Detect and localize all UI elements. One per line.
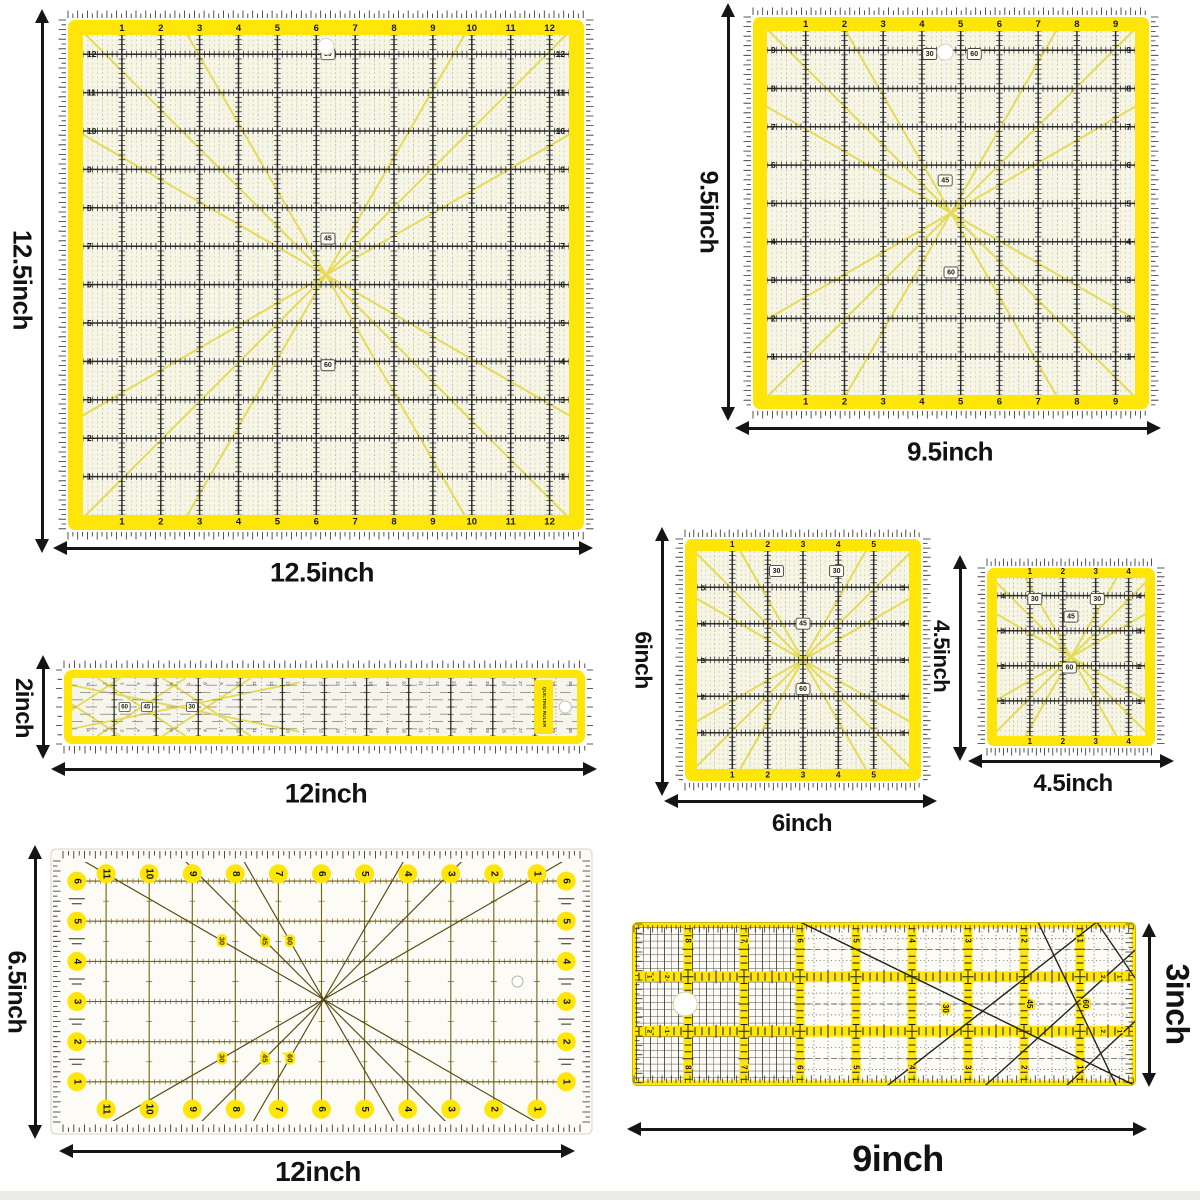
svg-text:7: 7 <box>740 1065 749 1070</box>
r45-height-label: 4.5inch <box>928 620 954 692</box>
svg-text:1: 1 <box>71 1079 82 1085</box>
r95-width-arrow <box>748 427 1148 430</box>
svg-text:1: 1 <box>1137 699 1141 706</box>
svg-text:60: 60 <box>285 937 294 945</box>
svg-text:30: 30 <box>926 51 934 58</box>
svg-text:2: 2 <box>842 397 847 408</box>
svg-text:10: 10 <box>236 681 241 686</box>
svg-text:45: 45 <box>144 705 151 711</box>
svg-text:12: 12 <box>544 517 555 528</box>
svg-text:1: 1 <box>645 975 652 979</box>
svg-text:23: 23 <box>452 681 457 686</box>
quilting-rulers-product-diagram: 1234567891011121234567891011121211109876… <box>0 0 1200 1200</box>
svg-text:3: 3 <box>881 397 886 408</box>
svg-text:3: 3 <box>1126 275 1131 285</box>
svg-text:7: 7 <box>353 517 358 528</box>
svg-text:12: 12 <box>269 681 274 686</box>
svg-text:10: 10 <box>556 126 566 136</box>
svg-text:24: 24 <box>468 728 473 733</box>
svg-text:1: 1 <box>560 472 565 482</box>
svg-text:17: 17 <box>352 681 357 686</box>
svg-text:10: 10 <box>467 517 478 528</box>
svg-text:12: 12 <box>87 49 97 59</box>
svg-text:45: 45 <box>1067 614 1075 621</box>
svg-text:7: 7 <box>273 1106 284 1112</box>
svg-text:10: 10 <box>236 728 241 733</box>
svg-text:10: 10 <box>144 868 155 880</box>
r12x65-width-label: 12inch <box>275 1156 361 1188</box>
svg-text:3: 3 <box>801 770 806 780</box>
svg-text:5: 5 <box>871 770 876 780</box>
r9x3-height-arrow <box>1148 936 1151 1074</box>
svg-text:2: 2 <box>158 517 163 528</box>
r125-width-arrow <box>66 547 580 550</box>
svg-text:3: 3 <box>197 23 202 34</box>
svg-text:2: 2 <box>488 1106 499 1112</box>
svg-text:26: 26 <box>501 681 506 686</box>
svg-text:8: 8 <box>230 1106 241 1112</box>
svg-text:1: 1 <box>1028 737 1033 746</box>
svg-text:2: 2 <box>663 975 670 979</box>
svg-text:12: 12 <box>269 728 274 733</box>
svg-text:5: 5 <box>701 583 705 592</box>
svg-text:4: 4 <box>771 237 776 247</box>
svg-text:27: 27 <box>518 681 523 686</box>
svg-text:60: 60 <box>324 362 332 369</box>
svg-text:9: 9 <box>1113 19 1118 30</box>
r12x2-height-arrow <box>42 668 45 746</box>
svg-text:1: 1 <box>1076 1065 1085 1070</box>
svg-text:9: 9 <box>771 45 776 55</box>
svg-text:6: 6 <box>316 1106 327 1112</box>
svg-text:7: 7 <box>740 938 749 943</box>
svg-text:1: 1 <box>803 397 809 408</box>
svg-text:9: 9 <box>430 23 435 34</box>
svg-text:45: 45 <box>324 236 332 243</box>
svg-text:2: 2 <box>1137 664 1141 671</box>
svg-text:1: 1 <box>701 729 705 738</box>
r6x6-height-label: 6inch <box>630 631 657 689</box>
svg-text:16: 16 <box>335 728 340 733</box>
svg-text:45: 45 <box>799 621 807 628</box>
r12x65-width-arrow <box>72 1150 562 1153</box>
r9x3-height-label: 3inch <box>1159 963 1196 1044</box>
svg-text:20: 20 <box>402 681 407 686</box>
svg-text:2: 2 <box>71 1039 82 1045</box>
svg-text:3: 3 <box>560 395 565 405</box>
svg-text:2: 2 <box>1126 313 1131 323</box>
svg-text:3: 3 <box>701 656 705 665</box>
svg-text:25: 25 <box>485 681 490 686</box>
svg-text:9: 9 <box>1126 45 1131 55</box>
svg-text:7: 7 <box>771 122 776 132</box>
svg-text:7: 7 <box>353 23 358 34</box>
svg-text:4: 4 <box>236 517 242 528</box>
svg-text:3: 3 <box>71 999 82 1005</box>
svg-text:11: 11 <box>506 23 517 34</box>
svg-text:19: 19 <box>385 728 390 733</box>
svg-text:9: 9 <box>430 517 435 528</box>
svg-text:60: 60 <box>121 705 128 711</box>
svg-text:15: 15 <box>319 728 324 733</box>
r12x2-height-label: 2inch <box>9 678 37 738</box>
svg-text:8: 8 <box>771 84 776 94</box>
svg-text:11: 11 <box>556 88 565 98</box>
svg-text:10: 10 <box>467 23 478 34</box>
svg-text:8: 8 <box>684 1065 693 1070</box>
r125-height-label: 12.5inch <box>7 230 38 330</box>
svg-text:8: 8 <box>1074 397 1079 408</box>
svg-text:3: 3 <box>445 871 456 877</box>
svg-text:5: 5 <box>958 19 964 30</box>
ruler-4-5-inch-square: 123412344321432130304560 <box>977 558 1165 756</box>
svg-text:3: 3 <box>1093 567 1098 576</box>
svg-text:3: 3 <box>197 517 202 528</box>
svg-text:60: 60 <box>970 51 978 58</box>
svg-text:6: 6 <box>314 23 319 34</box>
svg-text:2: 2 <box>1020 1065 1029 1070</box>
svg-text:2: 2 <box>901 692 905 701</box>
svg-text:4: 4 <box>561 959 572 965</box>
svg-text:22: 22 <box>435 728 440 733</box>
svg-text:6: 6 <box>1126 160 1131 170</box>
svg-text:4: 4 <box>836 539 841 549</box>
svg-text:1: 1 <box>901 729 905 738</box>
svg-text:2: 2 <box>560 433 565 443</box>
svg-text:6: 6 <box>560 280 565 290</box>
svg-text:60: 60 <box>1066 665 1074 672</box>
svg-text:6: 6 <box>997 397 1002 408</box>
svg-text:6: 6 <box>771 160 776 170</box>
svg-text:13: 13 <box>286 681 291 686</box>
svg-text:4: 4 <box>71 959 82 965</box>
r9x3-width-arrow <box>640 1128 1134 1131</box>
svg-text:4: 4 <box>908 1065 917 1070</box>
svg-text:5: 5 <box>852 938 861 943</box>
svg-text:20: 20 <box>402 728 407 733</box>
svg-text:7: 7 <box>87 241 92 251</box>
svg-text:60: 60 <box>799 686 807 693</box>
svg-text:12: 12 <box>544 23 555 34</box>
svg-text:30: 30 <box>833 568 841 575</box>
svg-text:21: 21 <box>418 728 423 733</box>
svg-text:8: 8 <box>391 517 396 528</box>
svg-text:17: 17 <box>352 728 357 733</box>
r125-height-arrow <box>41 22 44 540</box>
svg-text:30: 30 <box>568 681 573 686</box>
svg-text:1: 1 <box>119 517 125 528</box>
svg-text:2: 2 <box>87 433 92 443</box>
svg-text:3: 3 <box>87 395 92 405</box>
svg-text:11: 11 <box>101 1104 112 1115</box>
svg-text:6: 6 <box>796 938 805 943</box>
svg-text:23: 23 <box>452 728 457 733</box>
r95-height-arrow <box>727 16 730 408</box>
ruler-9-5-inch-square: 1234567891234567899876543219876543213060… <box>742 6 1160 420</box>
svg-text:2: 2 <box>701 692 705 701</box>
svg-text:5: 5 <box>275 517 281 528</box>
svg-text:1: 1 <box>1126 352 1131 362</box>
svg-text:8: 8 <box>1074 19 1079 30</box>
svg-text:14: 14 <box>302 728 307 733</box>
svg-text:24: 24 <box>468 681 473 686</box>
svg-text:5: 5 <box>852 1065 861 1070</box>
svg-text:1: 1 <box>1001 699 1005 706</box>
svg-text:4: 4 <box>1137 594 1141 601</box>
svg-text:30: 30 <box>568 728 573 733</box>
svg-text:1: 1 <box>771 352 776 362</box>
ruler-12x2-inch-strip: 1122334455667788991010111112121313141415… <box>56 660 593 754</box>
svg-text:5: 5 <box>901 583 905 592</box>
svg-text:4: 4 <box>560 356 565 366</box>
svg-text:1: 1 <box>730 770 735 780</box>
svg-text:4: 4 <box>402 1106 413 1112</box>
svg-text:60: 60 <box>947 269 955 276</box>
r125-width-label: 12.5inch <box>270 558 374 589</box>
r45-width-label: 4.5inch <box>1033 770 1112 798</box>
svg-text:5: 5 <box>359 1106 370 1112</box>
svg-text:2: 2 <box>561 1039 572 1045</box>
svg-text:8: 8 <box>684 938 693 943</box>
svg-text:26: 26 <box>501 728 506 733</box>
svg-text:3: 3 <box>445 1106 456 1112</box>
svg-text:6: 6 <box>314 517 319 528</box>
svg-text:9: 9 <box>1113 397 1118 408</box>
svg-text:6: 6 <box>561 878 572 884</box>
bottom-image-edge <box>0 1191 1200 1200</box>
svg-text:5: 5 <box>560 318 565 328</box>
svg-text:14: 14 <box>302 681 307 686</box>
svg-text:2: 2 <box>158 23 163 34</box>
r95-width-label: 9.5inch <box>907 437 993 468</box>
svg-text:19: 19 <box>385 681 390 686</box>
svg-text:11: 11 <box>506 517 517 528</box>
svg-text:1: 1 <box>1076 938 1085 943</box>
svg-text:1: 1 <box>531 871 542 877</box>
svg-text:25: 25 <box>485 728 490 733</box>
svg-text:4: 4 <box>402 871 413 877</box>
svg-text:6: 6 <box>71 878 82 884</box>
svg-text:30: 30 <box>218 1054 227 1062</box>
svg-text:1: 1 <box>531 1106 542 1112</box>
svg-text:4: 4 <box>836 770 841 780</box>
r45-height-arrow <box>959 568 962 748</box>
svg-text:12: 12 <box>556 49 566 59</box>
svg-text:6: 6 <box>796 1065 805 1070</box>
svg-text:5: 5 <box>87 318 92 328</box>
svg-text:5: 5 <box>359 871 370 877</box>
svg-text:60: 60 <box>285 1054 294 1062</box>
svg-text:5: 5 <box>561 918 572 924</box>
svg-text:27: 27 <box>518 728 523 733</box>
ruler-12-5-inch-square: 1234567891011121234567891011121211109876… <box>56 8 596 542</box>
r6x6-height-arrow <box>661 540 664 783</box>
svg-text:11: 11 <box>87 88 96 98</box>
svg-text:2: 2 <box>842 19 847 30</box>
svg-text:1: 1 <box>1028 567 1033 576</box>
svg-text:4: 4 <box>1126 237 1131 247</box>
svg-text:5: 5 <box>1126 198 1131 208</box>
svg-text:3: 3 <box>901 656 905 665</box>
svg-text:4: 4 <box>1126 567 1131 576</box>
svg-text:30: 30 <box>1093 596 1101 603</box>
svg-text:7: 7 <box>273 871 284 877</box>
svg-text:8: 8 <box>391 23 396 34</box>
svg-text:4: 4 <box>1001 594 1005 601</box>
svg-text:3: 3 <box>801 539 806 549</box>
r9x3-width-label: 9inch <box>852 1138 944 1180</box>
svg-text:9: 9 <box>560 164 565 174</box>
svg-text:3: 3 <box>964 938 973 943</box>
ruler-9x3-inch-rect: 876543218765432112212121304560 <box>632 922 1136 1086</box>
svg-text:4: 4 <box>908 938 917 943</box>
svg-text:11: 11 <box>101 869 112 880</box>
r12x2-width-label: 12inch <box>285 779 368 810</box>
svg-text:45: 45 <box>261 1054 270 1062</box>
svg-text:3: 3 <box>881 19 886 30</box>
svg-text:45: 45 <box>261 937 270 945</box>
ruler-6-inch-square: 1234512345543215432130304560 <box>674 528 932 792</box>
svg-text:5: 5 <box>275 23 281 34</box>
svg-text:9: 9 <box>187 1106 198 1112</box>
svg-text:45: 45 <box>941 177 949 184</box>
svg-text:2: 2 <box>765 539 770 549</box>
svg-text:45: 45 <box>1025 1000 1034 1009</box>
svg-text:3: 3 <box>1137 629 1141 636</box>
svg-text:5: 5 <box>958 397 964 408</box>
svg-text:13: 13 <box>286 728 291 733</box>
svg-text:11: 11 <box>252 728 257 733</box>
svg-text:1: 1 <box>1116 975 1123 979</box>
svg-text:1: 1 <box>803 19 809 30</box>
svg-text:2: 2 <box>488 871 499 877</box>
svg-text:1: 1 <box>561 1079 572 1085</box>
svg-text:5: 5 <box>771 198 776 208</box>
svg-text:60: 60 <box>1081 1000 1090 1009</box>
svg-text:3: 3 <box>964 1065 973 1070</box>
svg-text:30: 30 <box>941 1004 950 1013</box>
svg-text:2: 2 <box>645 1029 652 1033</box>
r12x2-width-arrow <box>64 768 584 771</box>
svg-text:3: 3 <box>561 999 572 1005</box>
r12x65-height-label: 6.5inch <box>2 951 31 1034</box>
svg-text:4: 4 <box>919 19 925 30</box>
svg-text:4: 4 <box>236 23 242 34</box>
svg-text:30: 30 <box>218 937 227 945</box>
r6x6-width-arrow <box>677 800 924 803</box>
svg-text:6: 6 <box>997 19 1002 30</box>
svg-text:2: 2 <box>771 313 776 323</box>
svg-text:QUILTING RULER: QUILTING RULER <box>541 687 547 728</box>
svg-text:9: 9 <box>187 871 198 877</box>
svg-text:8: 8 <box>230 871 241 877</box>
svg-text:18: 18 <box>369 728 374 733</box>
svg-text:1: 1 <box>119 23 125 34</box>
svg-text:4: 4 <box>87 356 92 366</box>
svg-text:2: 2 <box>1061 567 1066 576</box>
svg-text:10: 10 <box>144 1104 155 1116</box>
svg-text:2: 2 <box>765 770 770 780</box>
svg-text:1: 1 <box>663 1029 670 1033</box>
svg-text:7: 7 <box>560 241 565 251</box>
svg-text:18: 18 <box>369 681 374 686</box>
svg-text:6: 6 <box>87 280 92 290</box>
svg-text:21: 21 <box>418 681 423 686</box>
svg-text:8: 8 <box>87 203 92 213</box>
svg-text:1: 1 <box>87 472 92 482</box>
svg-text:22: 22 <box>435 681 440 686</box>
svg-text:9: 9 <box>87 164 92 174</box>
svg-text:5: 5 <box>71 918 82 924</box>
r12x65-height-arrow <box>34 858 37 1126</box>
svg-text:10: 10 <box>87 126 97 136</box>
svg-text:16: 16 <box>335 681 340 686</box>
svg-text:1: 1 <box>730 539 735 549</box>
r6x6-width-label: 6inch <box>772 810 832 838</box>
svg-text:8: 8 <box>560 203 565 213</box>
svg-text:30: 30 <box>1031 596 1039 603</box>
svg-text:6: 6 <box>316 871 327 877</box>
svg-text:3: 3 <box>1001 629 1005 636</box>
svg-text:8: 8 <box>1126 84 1131 94</box>
svg-text:7: 7 <box>1036 19 1041 30</box>
svg-text:11: 11 <box>252 681 257 686</box>
svg-text:30: 30 <box>773 568 781 575</box>
svg-text:4: 4 <box>1126 737 1131 746</box>
svg-text:2: 2 <box>1001 664 1005 671</box>
svg-text:2: 2 <box>1099 975 1106 979</box>
svg-text:7: 7 <box>1126 122 1131 132</box>
svg-text:30: 30 <box>189 705 196 711</box>
svg-text:3: 3 <box>771 275 776 285</box>
svg-text:2: 2 <box>1061 737 1066 746</box>
svg-text:2: 2 <box>1020 938 1029 943</box>
svg-text:15: 15 <box>319 681 324 686</box>
r45-width-arrow <box>981 760 1161 763</box>
svg-text:7: 7 <box>1036 397 1041 408</box>
svg-text:1: 1 <box>1116 1029 1123 1033</box>
svg-text:2: 2 <box>1099 1029 1106 1033</box>
svg-text:4: 4 <box>919 397 925 408</box>
ruler-12x6-5-inch-rect: 3030454560601110987654321111098765432165… <box>50 848 593 1135</box>
svg-text:3: 3 <box>1093 737 1098 746</box>
svg-text:5: 5 <box>871 539 876 549</box>
r95-height-label: 9.5inch <box>694 171 723 254</box>
